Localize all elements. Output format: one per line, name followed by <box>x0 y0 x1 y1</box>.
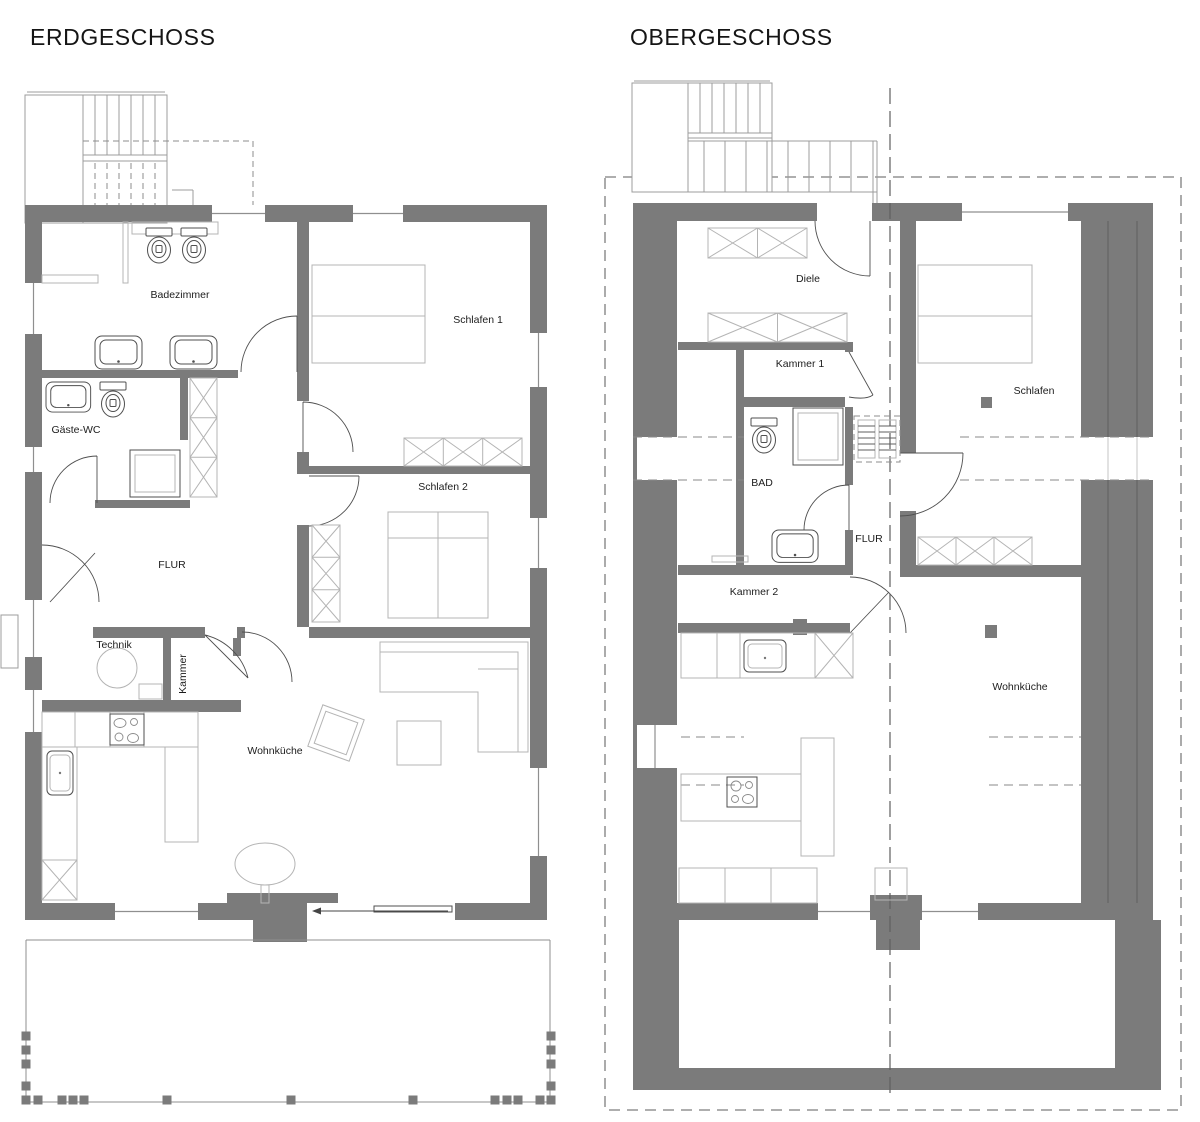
stove-icon <box>727 777 757 807</box>
room-label-schlafen-1: Schlafen 1 <box>453 314 503 326</box>
og-post <box>981 397 992 408</box>
og-kitchen-counter <box>679 633 853 903</box>
wardrobe-icon <box>708 313 847 342</box>
room-label-technik: Technik <box>96 639 132 651</box>
room-label-kammer: Kammer <box>177 654 189 694</box>
toilet-icon <box>146 228 172 263</box>
og-plan <box>605 81 1181 1110</box>
og-post <box>985 625 997 638</box>
kitchen-island <box>801 738 834 856</box>
bed-icon <box>312 265 425 363</box>
sink-icon <box>95 336 142 369</box>
wardrobe-icon <box>42 860 77 900</box>
sink-icon <box>772 530 818 562</box>
floorplan-sheet: ERDGESCHOSS OBERGESCHOSS Badezimmer Gäst… <box>0 0 1200 1122</box>
eg-plan <box>1 92 556 1105</box>
kitchen-island <box>165 747 198 842</box>
room-label-schlafen-2: Schlafen 2 <box>418 481 468 493</box>
room-label-eg-wohnkueche: Wohnküche <box>247 745 302 757</box>
toilet-icon <box>751 418 777 453</box>
room-label-eg-flur: FLUR <box>158 559 185 571</box>
shower-icon <box>793 408 843 465</box>
kitchen-counter <box>42 712 198 900</box>
kitchen-sink-icon <box>744 640 786 672</box>
room-label-og-flur: FLUR <box>855 533 882 545</box>
terrace-posts <box>22 1032 556 1105</box>
eg-exterior-box <box>1 615 18 668</box>
eg-exterior-stair-icon <box>25 92 253 223</box>
radiator-icon <box>854 416 900 462</box>
side-table <box>397 721 441 765</box>
shower-icon <box>130 450 180 497</box>
tall-cabinet-icon <box>190 378 217 497</box>
wardrobe-icon <box>404 438 522 466</box>
toilet-icon <box>100 382 126 417</box>
og-kneewall-lines <box>633 437 1153 785</box>
og-windows <box>637 203 1153 912</box>
stove-icon <box>110 714 144 745</box>
wardrobe-icon <box>918 537 1032 565</box>
wardrobe-icon <box>815 633 853 678</box>
room-label-kammer-1: Kammer 1 <box>776 358 824 370</box>
sink-icon <box>170 336 217 369</box>
room-label-bad: BAD <box>751 477 773 489</box>
room-label-badezimmer: Badezimmer <box>151 289 210 301</box>
wardrobe-icon <box>708 228 807 258</box>
toilet-icon <box>181 228 207 263</box>
floor-title-obergeschoss: OBERGESCHOSS <box>630 24 833 51</box>
eg-windows <box>25 205 547 920</box>
kitchen-sink-icon <box>47 751 73 795</box>
sofa-icon <box>380 642 528 752</box>
boiler-icon <box>97 648 162 699</box>
bed-icon <box>388 512 488 618</box>
room-label-og-wohnkueche: Wohnküche <box>992 681 1047 693</box>
room-label-og-schlafen: Schlafen <box>1014 385 1055 397</box>
og-chimney <box>870 895 922 920</box>
room-label-gaeste-wc: Gäste-WC <box>51 424 100 436</box>
room-label-diele: Diele <box>796 273 820 285</box>
bed-icon <box>918 265 1032 363</box>
wardrobe-icon <box>312 525 340 622</box>
og-exterior-stair-icon <box>632 81 877 205</box>
sink-icon <box>46 382 91 412</box>
eg-terrace <box>22 940 556 1105</box>
floor-title-erdgeschoss: ERDGESCHOSS <box>30 24 216 51</box>
room-label-kammer-2: Kammer 2 <box>730 586 778 598</box>
coffee-table-icon <box>308 705 364 761</box>
shelf <box>42 275 98 283</box>
